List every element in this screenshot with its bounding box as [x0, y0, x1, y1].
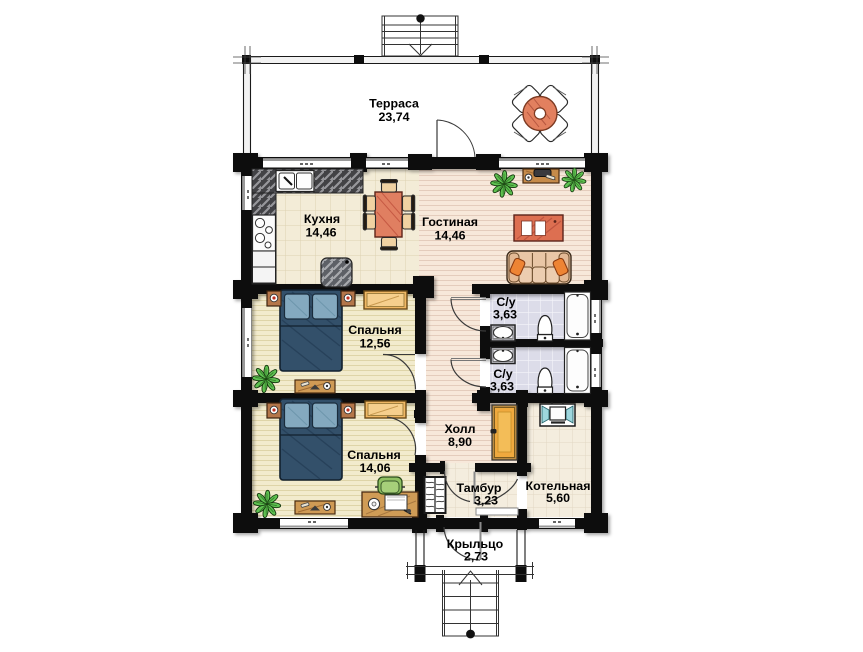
svg-text:Холл: Холл	[444, 422, 475, 436]
svg-text:14,46: 14,46	[434, 229, 465, 243]
svg-text:14,06: 14,06	[359, 461, 390, 475]
svg-text:5,60: 5,60	[546, 491, 570, 505]
svg-text:3,63: 3,63	[490, 380, 514, 394]
svg-text:Спальня: Спальня	[347, 448, 401, 462]
svg-text:2,73: 2,73	[464, 550, 488, 564]
svg-text:Гостиная: Гостиная	[422, 215, 478, 229]
svg-text:Кухня: Кухня	[304, 212, 340, 226]
svg-text:14,46: 14,46	[305, 226, 336, 240]
svg-text:12,56: 12,56	[359, 337, 390, 351]
svg-text:3,23: 3,23	[474, 494, 498, 508]
svg-text:Спальня: Спальня	[348, 323, 402, 337]
svg-text:23,74: 23,74	[378, 110, 409, 124]
svg-text:3,63: 3,63	[493, 308, 517, 322]
svg-text:8,90: 8,90	[448, 435, 472, 449]
svg-text:Терраса: Терраса	[369, 97, 419, 111]
